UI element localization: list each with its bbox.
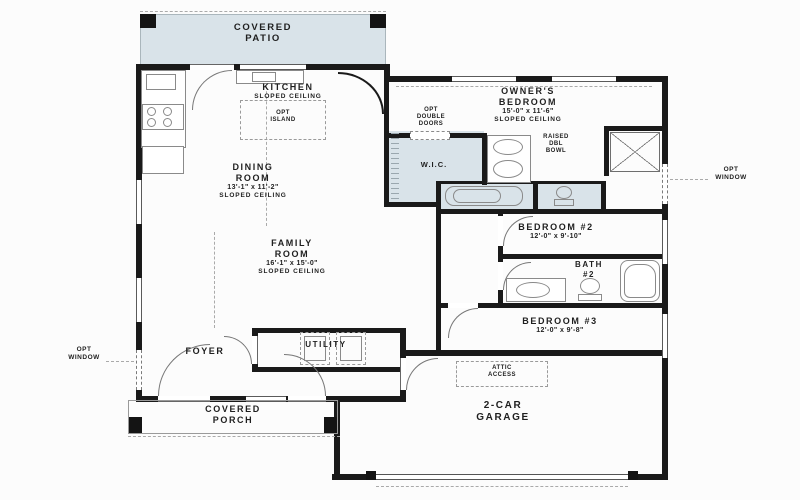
room-dims: 12'-0" x 9'-8"	[522, 327, 598, 335]
room-dims: 16'-1" x 15'-0"	[258, 260, 326, 268]
leader-line	[670, 179, 708, 180]
wall	[400, 350, 668, 356]
room-note: SLOPED CEILING	[219, 192, 287, 200]
window	[662, 220, 668, 264]
window	[552, 76, 616, 82]
window	[136, 278, 142, 322]
kitchen-label: KITCHEN SLOPED CEILING	[254, 82, 322, 101]
wall	[601, 183, 606, 209]
wic-label: W.I.C.	[421, 160, 447, 169]
kitchen-sink	[146, 74, 176, 90]
room-name: FAMILY ROOM	[264, 238, 320, 260]
opt-window-right-label: OPT WINDOW	[713, 166, 749, 182]
wall	[384, 82, 389, 207]
wall	[604, 126, 609, 176]
room-number: #2	[575, 270, 603, 280]
room-dims: 15'-0" x 11'-6"	[489, 108, 567, 116]
room-name: BATH	[575, 260, 603, 270]
door-arc	[224, 336, 252, 364]
sink-bowl	[516, 282, 550, 298]
room-name: FOYER	[185, 346, 224, 357]
wall	[604, 126, 662, 131]
toilet-bowl	[580, 278, 600, 294]
annotation-text: ATTIC ACCESS	[479, 365, 525, 379]
room-dims: 13'-1" x 11'-2"	[219, 184, 287, 192]
tub-basin	[624, 264, 656, 298]
room-name: UTILITY	[305, 340, 346, 350]
utility-door-opening	[252, 336, 258, 364]
utility-label: UTILITY	[305, 340, 346, 350]
garage-door-post	[628, 471, 638, 480]
leader-line	[106, 361, 134, 362]
opt-double-doors-label: OPT DOUBLE DOORS	[413, 107, 449, 129]
patio-post	[140, 14, 156, 28]
annotation-text: OPT ISLAND	[266, 110, 300, 124]
bedroom2-label: BEDROOM #2 12'-0" x 9'-10"	[518, 222, 594, 241]
room-note: SLOPED CEILING	[489, 116, 567, 124]
wall	[384, 76, 668, 82]
window	[452, 76, 516, 82]
room-note: SLOPED CEILING	[258, 268, 326, 276]
room-name: COVERED PATIO	[227, 22, 299, 45]
family-label: FAMILY ROOM 16'-1" x 15'-0" SLOPED CEILI…	[258, 238, 326, 276]
burner	[147, 118, 156, 127]
sink-bowl	[493, 139, 523, 155]
garage-vehicle-door	[376, 474, 628, 480]
shower	[610, 132, 660, 172]
bath2-label: BATH #2	[575, 260, 603, 279]
prep-sink	[252, 72, 276, 82]
opt-window-left-label: OPT WINDOW	[66, 346, 102, 362]
annotation-text: RAISED DBL BOWL	[541, 134, 571, 156]
room-dims: 12'-0" x 9'-10"	[518, 233, 594, 241]
wall	[436, 209, 668, 214]
toilet-tank	[554, 199, 574, 206]
room-name: COVERED PORCH	[197, 404, 269, 426]
raised-dbl-bowl-label: RAISED DBL BOWL	[541, 134, 571, 156]
toilet-tank	[578, 294, 602, 301]
patio-post	[370, 14, 386, 28]
room-name: KITCHEN	[254, 82, 322, 93]
door-arc	[406, 358, 438, 390]
window	[662, 314, 668, 358]
patio-label: COVERED PATIO	[227, 22, 299, 45]
wall	[533, 183, 538, 209]
wall	[436, 181, 441, 355]
room-name: OWNER'S BEDROOM	[489, 86, 567, 108]
wall	[662, 76, 668, 480]
sink-bowl	[493, 160, 523, 178]
room-name: W.I.C.	[421, 160, 447, 169]
room-name: BEDROOM #2	[518, 222, 594, 233]
tub-basin	[453, 189, 501, 203]
optional-window	[662, 164, 668, 204]
room-note: SLOPED CEILING	[254, 93, 322, 101]
wall	[252, 367, 406, 372]
porch-label: COVERED PORCH	[197, 404, 269, 426]
optional-window	[136, 350, 142, 390]
owners-bedroom-label: OWNER'S BEDROOM 15'-0" x 11'-6" SLOPED C…	[489, 86, 567, 124]
ceiling-break-line	[214, 232, 215, 328]
annotation-text: OPT WINDOW	[713, 166, 749, 182]
porch-edge-dashed	[128, 436, 340, 437]
curved-wall	[338, 72, 384, 114]
annotation-text: OPT DOUBLE DOORS	[413, 107, 449, 129]
floor-plan: COVERED PATIO KITCHEN SLOPED CEILING OPT…	[0, 0, 800, 500]
room-name: BEDROOM #3	[522, 316, 598, 327]
window	[136, 180, 142, 224]
wall	[498, 254, 668, 259]
room-name: DINING ROOM	[225, 162, 281, 184]
patio-edge-dashed	[140, 11, 386, 12]
driveway-dashed	[376, 486, 628, 487]
patio-door-opening	[190, 64, 234, 70]
attic-access-label: ATTIC ACCESS	[479, 365, 525, 379]
opt-island-label: OPT ISLAND	[266, 110, 300, 124]
bedroom3-label: BEDROOM #3 12'-0" x 9'-8"	[522, 316, 598, 335]
burner	[163, 107, 172, 116]
garage-label: 2-CAR GARAGE	[472, 400, 534, 424]
garage-door-opening	[400, 358, 406, 390]
door-arc	[192, 70, 232, 110]
toilet-bowl	[556, 186, 572, 199]
room-name: 2-CAR GARAGE	[472, 400, 534, 424]
garage-door-post	[366, 471, 376, 480]
foyer-label: FOYER	[185, 346, 224, 357]
burner	[163, 118, 172, 127]
burner	[147, 107, 156, 116]
annotation-text: OPT WINDOW	[66, 346, 102, 362]
refrigerator	[142, 146, 184, 174]
closet-shelving	[391, 133, 399, 203]
door-arc	[448, 308, 478, 338]
dining-label: DINING ROOM 13'-1" x 11'-2" SLOPED CEILI…	[219, 162, 287, 200]
opt-double-doors-opening	[410, 131, 450, 140]
